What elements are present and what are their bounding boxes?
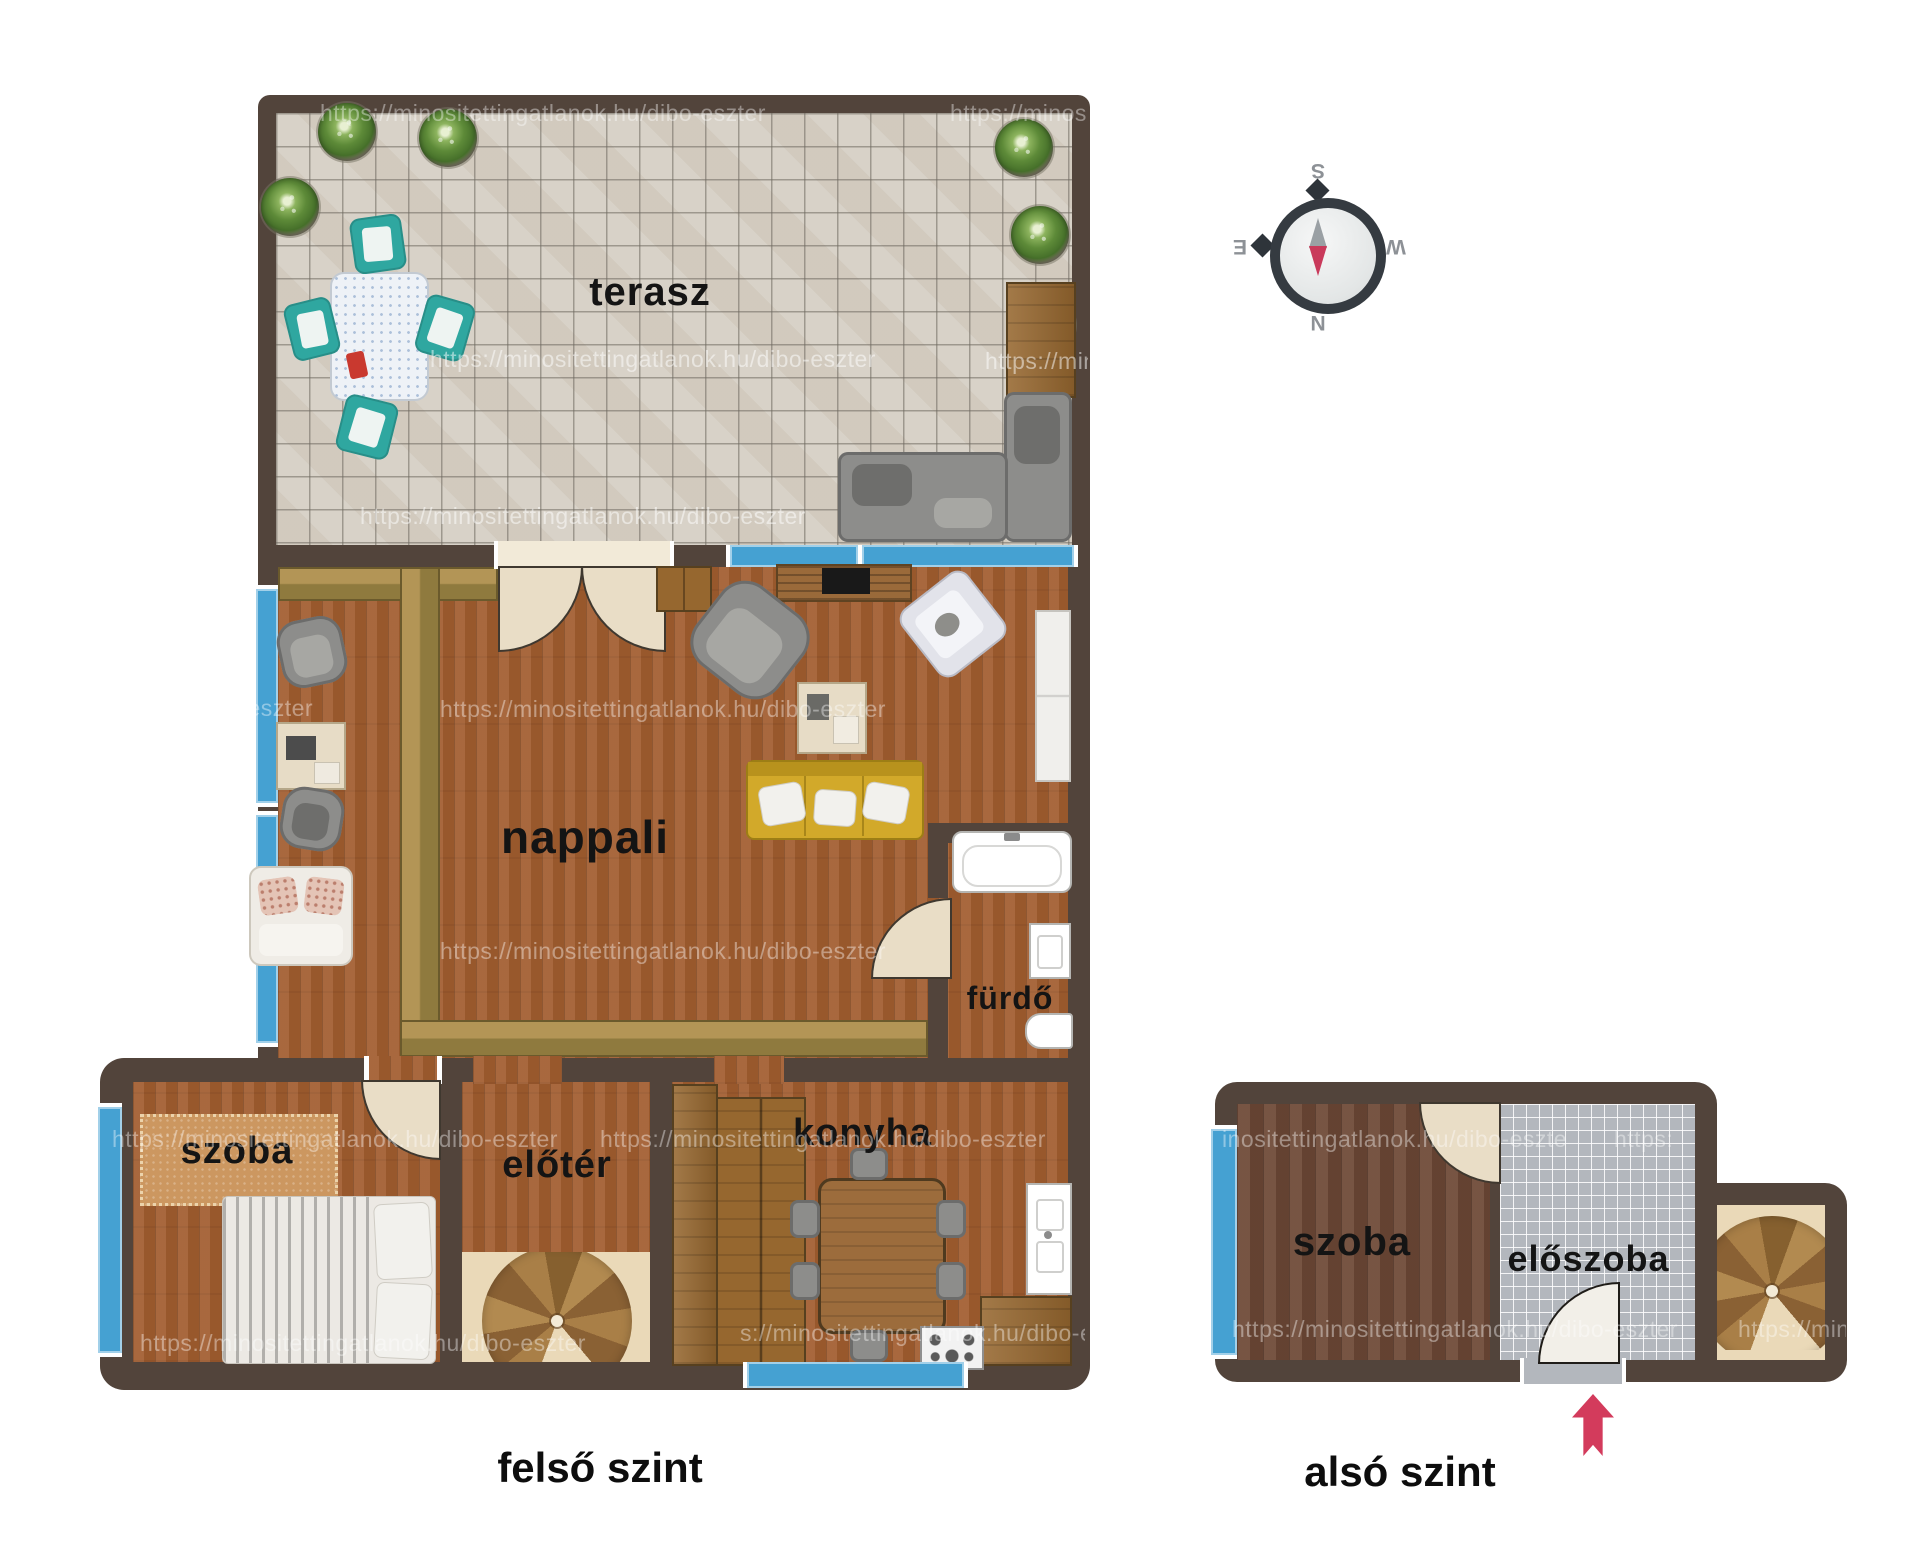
room-label-living: nappali xyxy=(480,810,690,864)
watermark: s://minositettingatlanok.hu/dibo-eszter xyxy=(740,1320,1085,1347)
terrace-door-threshold xyxy=(494,541,674,569)
watermark: https://minositettingatlanok.hu/dibo-esz… xyxy=(1232,1316,1694,1343)
caption-lower-level: alsó szint xyxy=(1230,1448,1570,1496)
caption-upper-level: felső szint xyxy=(430,1444,770,1492)
watermark: o-eszter xyxy=(226,695,334,722)
room-label-bath: fürdő xyxy=(950,980,1070,1017)
watermark: https://minositettingatlanok.hu/dibo-esz… xyxy=(320,100,880,127)
watermark: https://minositettingatlanok.hu/dibo-esz… xyxy=(360,503,880,530)
room-label-terrace: terasz xyxy=(570,270,730,315)
plant-icon xyxy=(261,178,319,236)
compass-needle-south xyxy=(1309,246,1327,276)
side-cabinet xyxy=(656,566,712,612)
loveseat xyxy=(249,866,353,966)
doorway xyxy=(714,1056,784,1084)
compass-letter-left: E xyxy=(1226,234,1254,258)
watermark: https://minositettingatlanok.hu/dibo-esz… xyxy=(600,1126,1070,1153)
watermark: https: xyxy=(1614,1126,1694,1153)
compass-letter-bottom: N xyxy=(1304,310,1332,334)
terrace-sofa-chaise xyxy=(1004,392,1072,542)
tv-icon xyxy=(822,568,870,594)
terrace-cabinet xyxy=(1006,282,1076,398)
watermark: https://minositettingatlanok.hu/dibo-esz… xyxy=(985,348,1088,375)
dining-chair xyxy=(936,1262,966,1300)
faucet-icon xyxy=(1004,833,1020,841)
watermark: ok.hu/dibo-eszter xyxy=(102,938,232,965)
desk-nook xyxy=(276,722,346,790)
bathtub xyxy=(952,831,1072,893)
tv-console xyxy=(776,564,912,602)
faucet-icon xyxy=(1044,1231,1052,1239)
watermark: https://minositettingatlanok.hu/dibo-esz… xyxy=(140,1330,590,1357)
parquet-band-left xyxy=(400,567,440,1057)
washbasin xyxy=(1029,923,1071,979)
compass-letter-top: S xyxy=(1304,158,1332,182)
plant-icon xyxy=(1011,206,1069,264)
terrace-table xyxy=(330,272,429,401)
sofa-yellow xyxy=(746,760,924,840)
wardrobe xyxy=(1035,610,1071,782)
dining-chair xyxy=(936,1200,966,1238)
bath-wall-left2 xyxy=(928,972,948,1060)
parquet-band-top xyxy=(278,567,498,601)
room-label-hall-lower: előszoba xyxy=(1496,1238,1681,1280)
plant-icon xyxy=(995,119,1053,177)
compass-needle-north xyxy=(1309,218,1327,248)
watermark: https://minositettingatlanok.hu/dibo-esz… xyxy=(440,938,910,965)
spiral-staircase xyxy=(1697,1216,1847,1366)
parquet-band-bottom xyxy=(400,1020,928,1057)
dining-chair xyxy=(790,1200,820,1238)
watermark: inositettingatlanok.hu/dibo-eszte xyxy=(1222,1126,1567,1153)
compass-rose: S N E W xyxy=(1232,158,1404,334)
watermark: https://minositettingatlanok.hu/dibo-esz… xyxy=(950,100,1088,127)
entrance-arrow-icon xyxy=(1572,1394,1614,1456)
window xyxy=(743,1362,968,1388)
watermark: https://mino xyxy=(1738,1316,1846,1343)
watermark: https://minositettingatlanok.hu/dibo-esz… xyxy=(430,346,900,373)
dining-table xyxy=(818,1178,946,1334)
watermark: https://minositettingatlanok.hu/dibo-esz… xyxy=(112,1126,567,1153)
kitchen-sink xyxy=(1026,1183,1072,1295)
terrace-chair xyxy=(348,213,407,276)
room-label-bedroom-lower: szoba xyxy=(1272,1220,1432,1265)
floor-plan-canvas: terasz xyxy=(0,0,1920,1555)
doorway xyxy=(473,1056,562,1084)
watermark: https://minositettingatlanok.hu/dibo-esz… xyxy=(440,696,920,723)
dining-chair xyxy=(790,1262,820,1300)
compass-letter-right: W xyxy=(1382,234,1410,258)
bath-wall-left xyxy=(928,843,948,898)
compass-ring xyxy=(1270,198,1386,314)
toilet xyxy=(1025,1013,1073,1049)
